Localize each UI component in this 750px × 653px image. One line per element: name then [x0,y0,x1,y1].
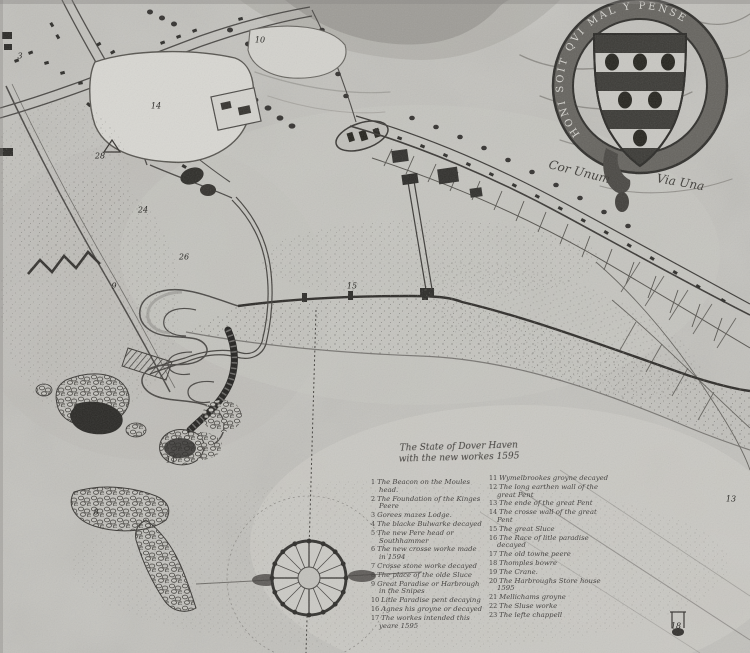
legend-item: 18 Thomples bowre [489,560,610,568]
legend-item: 9 Great Paradise or Harbrough in the Sni… [371,581,484,597]
legend-item: 21 Mellichams groyne [489,594,610,602]
legend-item: 20 The Harbroughs Store house 1595 [489,578,610,594]
legend-item: 16 The Race of litle paradise decayed [489,535,610,551]
legend-item: 13 The ende of the great Pent [489,500,610,508]
legend-item: 17 The old towne peere [489,551,610,559]
map-number-label: 13 [726,495,736,504]
map-number-label: 14 [151,102,161,111]
legend-item: 5 The new Pere head or Southhammer [371,530,484,546]
legend-item: 4 The blacke Bulwarke decayed [371,521,484,529]
legend-item: 8 The place of the olde Sluce [371,572,484,580]
map-number-label: 10 [255,36,265,45]
map-number-label: 8 [93,508,98,517]
map-number-label: 15 [347,282,357,291]
map-number-label: 28 [95,152,105,161]
legend-item: 11 Wymelbrookes groyne decayed [489,475,610,483]
map-number-label: 9 [111,282,116,291]
legend-left-column: 1 The Beacon on the Moules head.2 The Fo… [371,479,484,631]
legend-item: 1 The Beacon on the Moules head. [371,479,484,495]
map-number-label: 3 [17,52,22,61]
legend-item: 17 The workes intended this yeare 1595 [371,615,484,631]
legend-item: 22 The Sluse worke [489,603,610,611]
legend-item: 14 The crosse wall of the great Pent [489,509,610,525]
legend-item: 3 Gorees mazes Lodge. [371,512,484,520]
map-number-label: 11 [166,456,176,465]
legend-item: 19 The Crane. [489,569,610,577]
legend-item: 7 Crosse stone worke decayed [371,563,484,571]
legend-item: 6 The new crosse worke made in 1594 [371,546,484,562]
legend-item: 12 The long earthen wall of the great Pe… [489,484,610,500]
map-number-label: 24 [138,206,148,215]
legend-item: 2 The Foundation of the Kinges Peere [371,496,484,512]
legend-item: 10 Litle Paradise pent decaying [371,597,484,605]
legend-item: 16 Agnes his groyne or decayed [371,606,484,614]
map-scan-canvas: HONI SOIT QVI MAL Y PENSE Cor Unum Via U… [0,0,750,653]
legend-item: 23 The lefte chappell [489,612,610,620]
legend-item: 15 The great Sluce [489,526,610,534]
map-number-label: 18 [671,622,681,631]
map-number-label: 26 [179,253,189,262]
legend-right-column: 11 Wymelbrookes groyne decayed12 The lon… [489,475,610,621]
map-title: The State of Dover Haven with the new wo… [390,440,529,466]
